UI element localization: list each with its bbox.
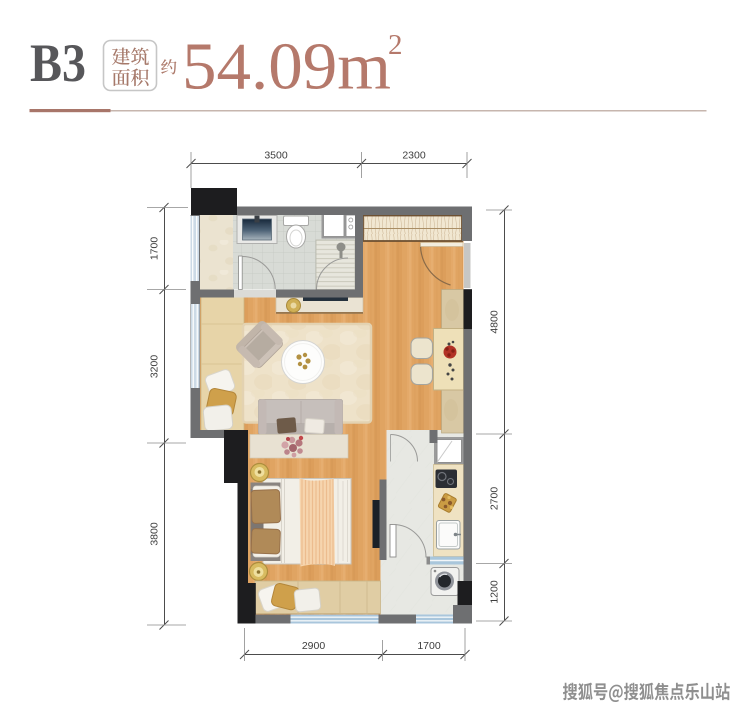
svg-text:2900: 2900 [302, 640, 326, 652]
svg-text:2300: 2300 [402, 150, 426, 162]
svg-text:3800: 3800 [149, 522, 161, 546]
svg-text:B3: B3 [30, 33, 86, 93]
svg-text:3500: 3500 [264, 150, 288, 162]
svg-text:1200: 1200 [489, 580, 501, 604]
svg-text:3200: 3200 [149, 355, 161, 379]
svg-text:2: 2 [388, 29, 403, 61]
svg-text:2700: 2700 [489, 487, 501, 511]
svg-text:54.09m: 54.09m [182, 30, 391, 104]
svg-text:1700: 1700 [417, 640, 441, 652]
svg-text:4800: 4800 [489, 310, 501, 334]
svg-text:1700: 1700 [149, 237, 161, 261]
